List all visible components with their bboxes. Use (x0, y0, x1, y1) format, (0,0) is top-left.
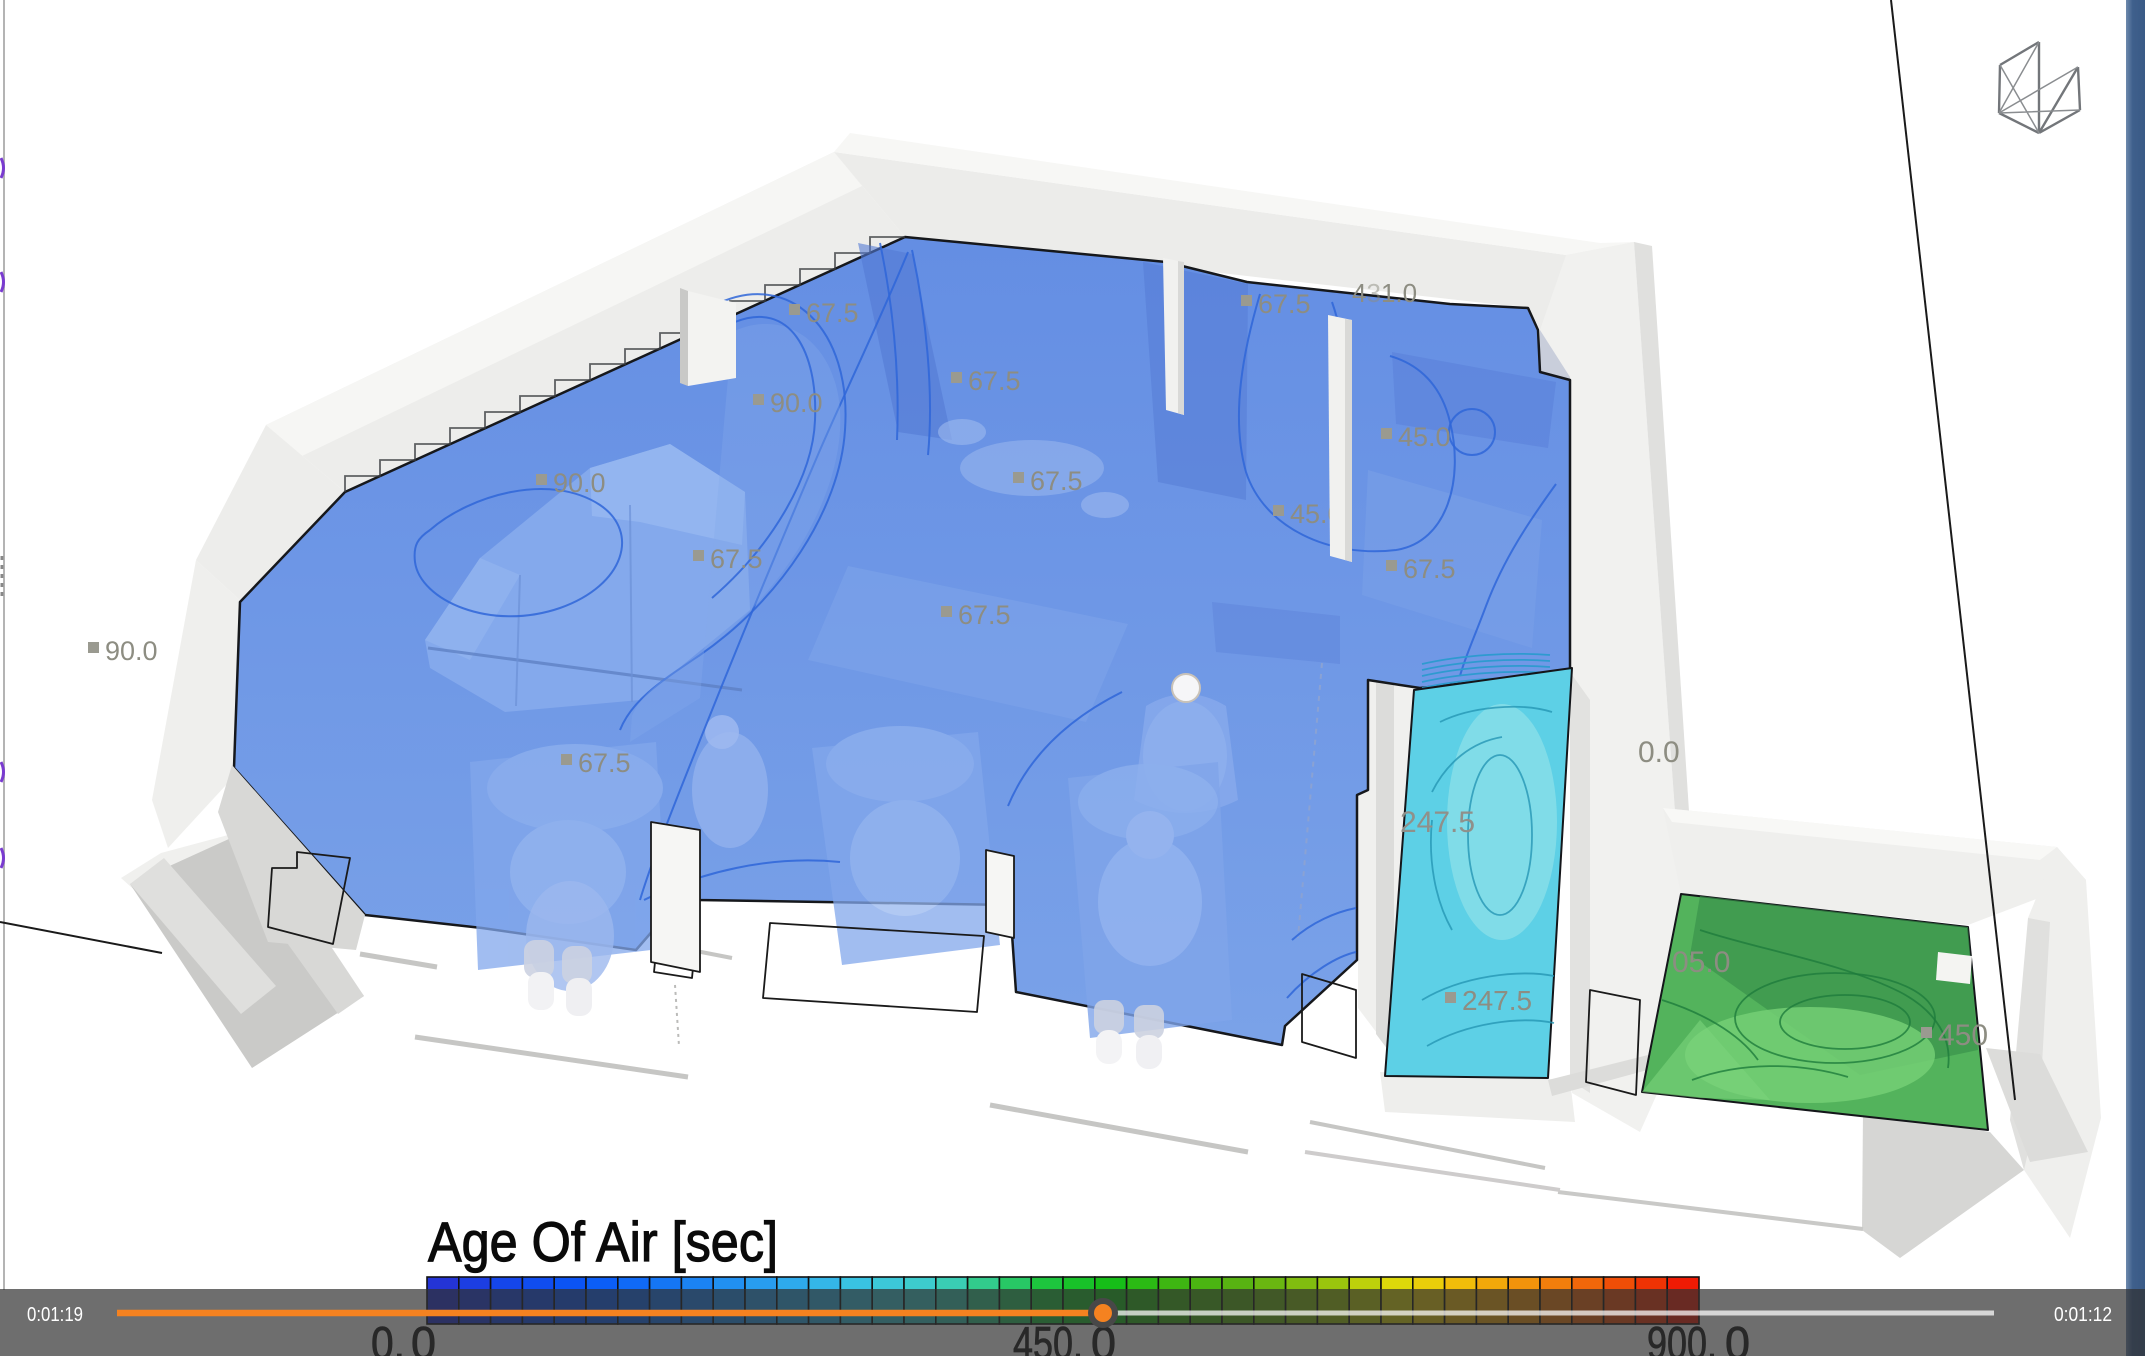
svg-text:Age Of Air [sec]: Age Of Air [sec] (428, 1210, 778, 1273)
svg-text:247.5: 247.5 (1400, 806, 1475, 839)
svg-text:67.5: 67.5 (968, 366, 1021, 396)
svg-text:67.5: 67.5 (710, 544, 763, 574)
svg-text:90.0: 90.0 (770, 388, 823, 418)
svg-text:67.5: 67.5 (958, 600, 1011, 630)
svg-text:45.0: 45.0 (1398, 422, 1451, 452)
svg-text:67.5: 67.5 (578, 748, 631, 778)
svg-text:90.0: 90.0 (105, 636, 158, 666)
svg-text:90.0: 90.0 (553, 468, 606, 498)
svg-text:431.0: 431.0 (1352, 278, 1417, 308)
svg-text:0:01:19: 0:01:19 (27, 1304, 83, 1326)
svg-text:0.0: 0.0 (1638, 736, 1680, 769)
svg-text:67.5: 67.5 (1403, 554, 1456, 584)
svg-text:247.5: 247.5 (1462, 985, 1532, 1016)
svg-text:67.5: 67.5 (1258, 289, 1311, 319)
svg-text:05.0: 05.0 (1672, 946, 1730, 979)
svg-text:67.5: 67.5 (1030, 466, 1083, 496)
svg-text:450: 450 (1938, 1019, 1988, 1052)
svg-text:0:01:12: 0:01:12 (2054, 1304, 2112, 1326)
svg-text:67.5: 67.5 (806, 298, 859, 328)
